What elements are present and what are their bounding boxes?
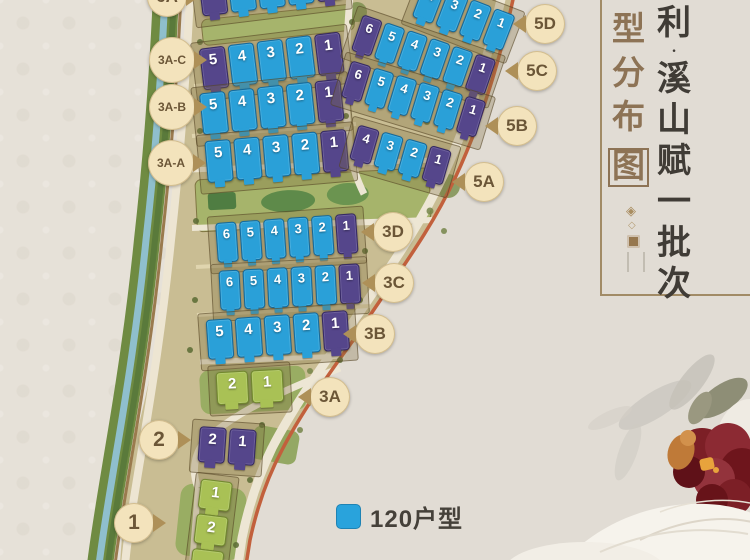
building-unit-4: 4 [263,218,287,259]
zone-badge-5A: 5A [464,162,504,202]
building-unit [227,0,258,13]
building-unit-1: 1 [338,263,361,304]
zone-badge-5D: 5D [525,4,565,44]
building-row-1: 12 [182,472,239,560]
title-char: · [671,48,676,56]
zone-badge-3C: 3C [374,263,414,303]
brand-seal-icon [627,235,640,248]
building-unit [284,0,315,6]
building-unit-6: 6 [218,270,241,311]
title-char: 利 [657,7,691,41]
zone-badge-3A-A: 3A-A [148,140,194,186]
building-unit-4: 4 [228,88,258,132]
building-unit-2: 2 [286,82,316,126]
building-unit-5: 5 [206,318,235,360]
title-char: 型 [612,14,645,47]
building-unit-3: 3 [263,314,292,356]
legend-swatch-120 [336,504,361,529]
fine-print-vertical-text [627,252,645,272]
building-row-3A: 21 [207,361,293,416]
building-unit-4: 4 [266,267,289,308]
building-unit-2: 2 [285,35,316,80]
legend-label: 120户型 [370,499,463,534]
zone-badge-5C: 5C [517,51,557,91]
building-unit-4: 4 [233,136,263,180]
title-char: 次 [657,268,691,302]
poster-title-project-name: 保利·溪山赋一批次 [657,0,691,302]
building-unit-2: 2 [311,215,335,256]
title-char: 分 [612,58,645,91]
zone-badge-1: 1 [114,503,154,543]
building-unit-2: 2 [314,265,337,306]
building-unit-5: 5 [239,220,263,261]
building-unit-1: 1 [227,428,256,466]
title-char: 布 [612,102,645,135]
zone-badge-3A: 3A [310,377,350,417]
building-unit-5: 5 [242,268,265,309]
building-unit-1: 1 [198,478,233,512]
diamond-ornament-icon: ◈ [626,203,636,219]
building-unit [189,548,224,560]
building-unit-2: 2 [292,312,321,354]
title-char: 赋 [657,145,691,179]
poster-title-map-type: 户型分布图 [608,0,649,187]
title-char: 一 [657,186,691,220]
building-unit-3: 3 [287,216,311,257]
building-unit-3: 3 [290,266,313,307]
building-row-3A-A: 54321 [196,121,359,195]
site-plan-poster: 5432154321543214321654321654321432165432… [0,0,750,560]
title-char: 户 [612,0,645,3]
building-unit-1: 1 [251,369,285,404]
zone-badge-2: 2 [139,420,179,460]
zone-badge-3A-B: 3A-B [149,84,195,130]
diamond-outline-ornament-icon: ◇ [628,220,636,231]
title-char: 批 [657,227,691,261]
building-unit-5: 5 [204,139,234,183]
title-char: 溪 [657,63,691,97]
building-unit-2: 2 [291,131,321,175]
building-unit-3: 3 [262,134,292,178]
building-unit [198,0,229,17]
zone-badge-5B: 5B [497,106,537,146]
building-unit-2: 2 [216,371,250,406]
building-unit-2: 2 [197,426,226,464]
building-unit [313,0,344,2]
zone-badge-3A-C: 3A-C [149,37,195,83]
building-unit-1: 1 [335,213,359,254]
building-unit-4: 4 [235,316,264,358]
zone-badge-3B: 3B [355,314,395,354]
building-unit-6: 6 [215,222,239,263]
building-row-2: 21 [189,419,266,478]
legend: 120户型 [336,499,463,534]
building-unit-3: 3 [257,85,287,129]
building-unit [255,0,286,9]
title-char: 山 [657,104,691,138]
zone-badge-6A: 6A [147,0,187,17]
building-unit-2: 2 [193,513,228,547]
zone-badge-3D: 3D [373,212,413,252]
title-char: 图 [608,148,649,187]
building-row-6A [189,0,353,28]
